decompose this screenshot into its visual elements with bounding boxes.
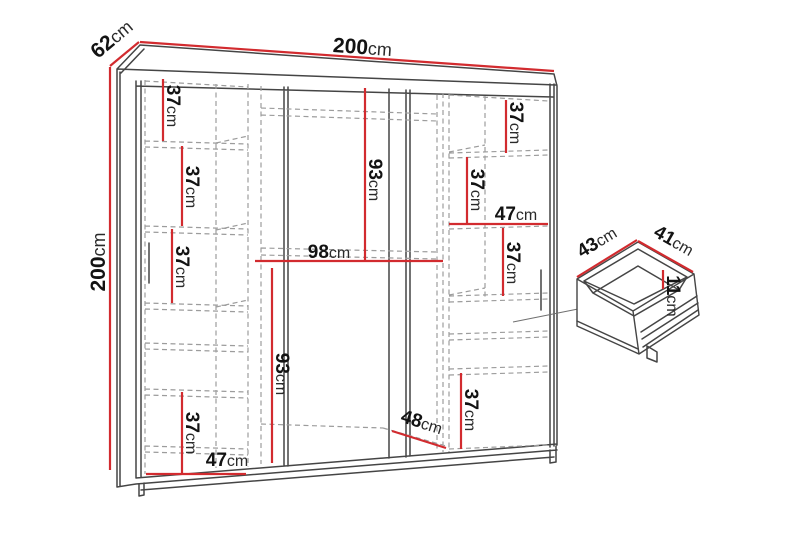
dim-middle-width: 98cm — [255, 242, 443, 263]
dim-left-shelf-3: 37cm — [171, 229, 192, 303]
dim-right-shelf-3-label: 37cm — [502, 242, 523, 284]
hidden-lines — [145, 80, 548, 474]
dim-middle-upper-height: 93cm — [364, 88, 385, 261]
dim-drawer-height: 11cm — [662, 270, 683, 317]
dim-right-shelf-4-value: 37 — [460, 389, 481, 410]
dim-right-shelf-1-label: 37cm — [505, 102, 526, 144]
dim-left-shelf-3-value: 37 — [171, 246, 192, 267]
dim-right-shelf-2-label: 37cm — [466, 169, 487, 211]
dim-right-shelf-2: 37cm — [466, 157, 487, 224]
dim-middle-upper-height-unit: cm — [365, 180, 382, 201]
dim-left-shelf-1-label: 37cm — [162, 85, 183, 127]
dim-left-shelf-1: 37cm — [162, 79, 183, 141]
dim-middle-lower-height: 93cm — [271, 268, 292, 463]
dim-drawer-height-label: 11cm — [662, 275, 683, 316]
drawer-leader-line — [513, 309, 578, 322]
dim-right-width-value: 47 — [495, 204, 516, 225]
dim-overall-width-label: 200cm — [332, 34, 393, 61]
dim-right-shelf-3-unit: cm — [503, 263, 520, 284]
dim-left-shelf-4: 37cm — [181, 392, 202, 473]
wardrobe-dimension-diagram: 200cm 62cm 200cm 37cm 37cm 37cm 37cm 47c… — [0, 0, 800, 533]
dim-left-shelf-2-label: 37cm — [181, 166, 202, 208]
dim-right-shelf-4: 37cm — [460, 373, 481, 449]
dim-right-shelf-1-value: 37 — [505, 102, 526, 123]
dim-overall-width-value: 200 — [332, 34, 369, 59]
dim-overall-width: 200cm — [140, 34, 554, 71]
dim-right-shelf-2-value: 37 — [466, 169, 487, 190]
dim-middle-depth: 48cm — [392, 406, 446, 448]
dim-left-width-label: 47cm — [206, 450, 248, 471]
dim-overall-depth: 62cm — [86, 15, 139, 66]
dim-middle-lower-height-value: 93 — [271, 353, 292, 374]
dim-middle-lower-height-label: 93cm — [271, 353, 292, 395]
dim-right-shelf-4-unit: cm — [461, 410, 478, 431]
dim-left-shelf-3-label: 37cm — [171, 246, 192, 288]
dim-drawer-height-value: 11 — [662, 275, 683, 296]
dim-middle-depth-unit: cm — [419, 416, 444, 439]
dim-middle-width-unit: cm — [329, 245, 350, 262]
dim-left-width-value: 47 — [206, 450, 227, 471]
dim-overall-height-label: 200cm — [87, 232, 110, 291]
dim-overall-height-value: 200 — [87, 256, 110, 291]
dim-left-shelf-1-unit: cm — [163, 106, 180, 127]
dim-left-width-unit: cm — [227, 453, 248, 470]
dim-left-shelf-4-value: 37 — [181, 412, 202, 433]
dim-middle-lower-height-unit: cm — [272, 374, 289, 395]
dim-left-shelf-2-unit: cm — [182, 187, 199, 208]
dim-left-shelf-2: 37cm — [181, 146, 202, 226]
diagram-canvas: 200cm 62cm 200cm 37cm 37cm 37cm 37cm 47c… — [0, 0, 800, 533]
dim-right-shelf-2-unit: cm — [467, 190, 484, 211]
dim-left-shelf-4-label: 37cm — [181, 412, 202, 454]
dim-right-shelf-3-value: 37 — [502, 242, 523, 263]
dim-overall-width-unit: cm — [367, 38, 392, 60]
dim-overall-height-unit: cm — [89, 232, 109, 256]
dim-middle-upper-height-value: 93 — [364, 159, 385, 180]
dim-right-width: 47cm — [449, 204, 548, 225]
dim-drawer-height-unit: cm — [663, 295, 680, 316]
dim-right-width-unit: cm — [516, 207, 537, 224]
dim-middle-upper-height-label: 93cm — [364, 159, 385, 201]
dim-middle-width-label: 98cm — [308, 242, 350, 263]
dim-overall-height: 200cm — [87, 67, 110, 470]
dim-right-shelf-4-label: 37cm — [460, 389, 481, 431]
dim-left-shelf-3-unit: cm — [172, 267, 189, 288]
dim-right-width-label: 47cm — [495, 204, 537, 225]
dim-right-shelf-1-unit: cm — [506, 123, 523, 144]
dim-left-shelf-4-unit: cm — [182, 433, 199, 454]
dim-right-shelf-3: 37cm — [502, 228, 523, 296]
dim-left-shelf-1-value: 37 — [162, 85, 183, 106]
dim-left-shelf-2-value: 37 — [181, 166, 202, 187]
dim-right-shelf-1: 37cm — [505, 100, 526, 153]
dim-middle-width-value: 98 — [308, 242, 329, 263]
